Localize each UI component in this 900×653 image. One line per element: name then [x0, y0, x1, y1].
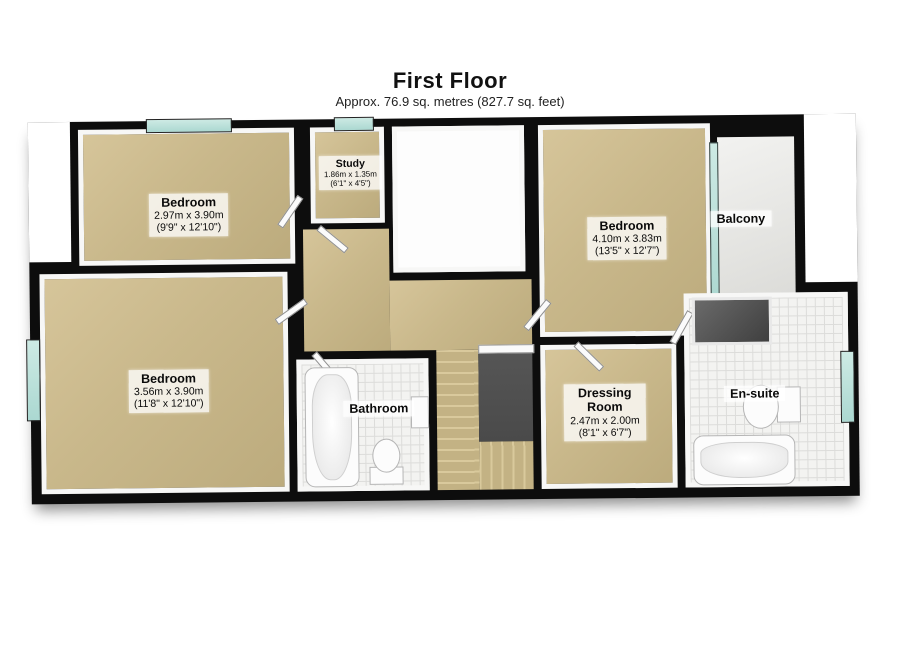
- label-bathroom: Bathroom: [343, 400, 414, 417]
- building-notch-top-right: [804, 114, 858, 283]
- bathtub-bathroom: [304, 367, 359, 488]
- toilet-bowl-bathroom: [372, 439, 400, 473]
- stair-railing: [478, 344, 534, 354]
- floorplan-image: First Floor Approx. 76.9 sq. metres (827…: [0, 0, 900, 653]
- room-name: Bedroom: [592, 219, 662, 234]
- window-bedroom-top-left: [146, 118, 232, 133]
- label-bedroom-top-left: Bedroom 2.97m x 3.90m (9'9" x 12'10"): [149, 193, 229, 236]
- room-dims-metric: 4.10m x 3.83m: [592, 233, 662, 246]
- room-dims-imperial: (13'5" x 12'7"): [592, 245, 662, 258]
- label-dressing-room: Dressing Room 2.47m x 2.00m (8'1" x 6'7"…: [564, 384, 647, 442]
- room-name: En-suite: [730, 386, 779, 401]
- room-dims-imperial: (6'1" x 4'5"): [324, 179, 377, 189]
- room-dims-imperial: (8'1" x 6'7"): [569, 426, 641, 439]
- room-name: Study: [324, 158, 377, 171]
- stair-void: [478, 349, 533, 442]
- bathtub-ensuite-basin: [700, 441, 788, 478]
- label-bedroom-top-right: Bedroom 4.10m x 3.83m (13'5" x 12'7"): [587, 216, 667, 259]
- landing-main: [390, 279, 533, 350]
- building-notch-top-left: [28, 122, 71, 262]
- shower-ensuite: [692, 297, 772, 346]
- bathtub-basin: [311, 374, 352, 480]
- room-dims-metric: 2.47m x 2.00m: [569, 414, 641, 427]
- stairs-left-flight: [436, 350, 479, 490]
- label-balcony: Balcony: [710, 210, 771, 227]
- floorplan: Bedroom 2.97m x 3.90m (9'9" x 12'10") St…: [0, 0, 900, 653]
- room-name: Balcony: [716, 212, 765, 227]
- room-name: Bedroom: [154, 195, 224, 210]
- stairs-bottom-flight: [479, 441, 533, 490]
- label-bedroom-bottom-left: Bedroom 3.56m x 3.90m (11'8" x 12'10"): [129, 369, 209, 412]
- window-bedroom-bottom-left: [26, 339, 41, 421]
- landing-void: [392, 125, 526, 272]
- room-dims-imperial: (9'9" x 12'10"): [154, 222, 224, 235]
- room-name: Dressing Room: [569, 386, 641, 416]
- room-dims-metric: 3.56m x 3.90m: [134, 386, 204, 399]
- room-name: Bathroom: [349, 401, 408, 416]
- room-name: Bedroom: [134, 371, 204, 386]
- room-dims-metric: 2.97m x 3.90m: [154, 209, 224, 222]
- label-ensuite: En-suite: [724, 385, 785, 402]
- label-study: Study 1.86m x 1.35m (6'1" x 4'5"): [319, 155, 382, 190]
- window-study: [334, 117, 374, 131]
- bathtub-ensuite: [693, 434, 796, 485]
- room-dims-imperial: (11'8" x 12'10"): [134, 398, 204, 411]
- window-ensuite: [840, 351, 855, 423]
